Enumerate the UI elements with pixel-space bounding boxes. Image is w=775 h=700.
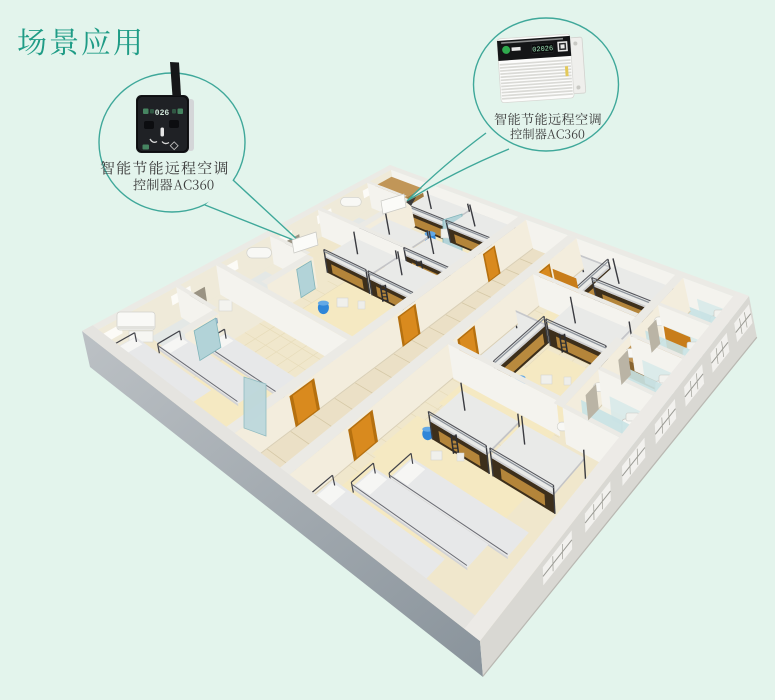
svg-text:026: 026 xyxy=(155,109,170,118)
svg-text:02026: 02026 xyxy=(532,45,554,54)
